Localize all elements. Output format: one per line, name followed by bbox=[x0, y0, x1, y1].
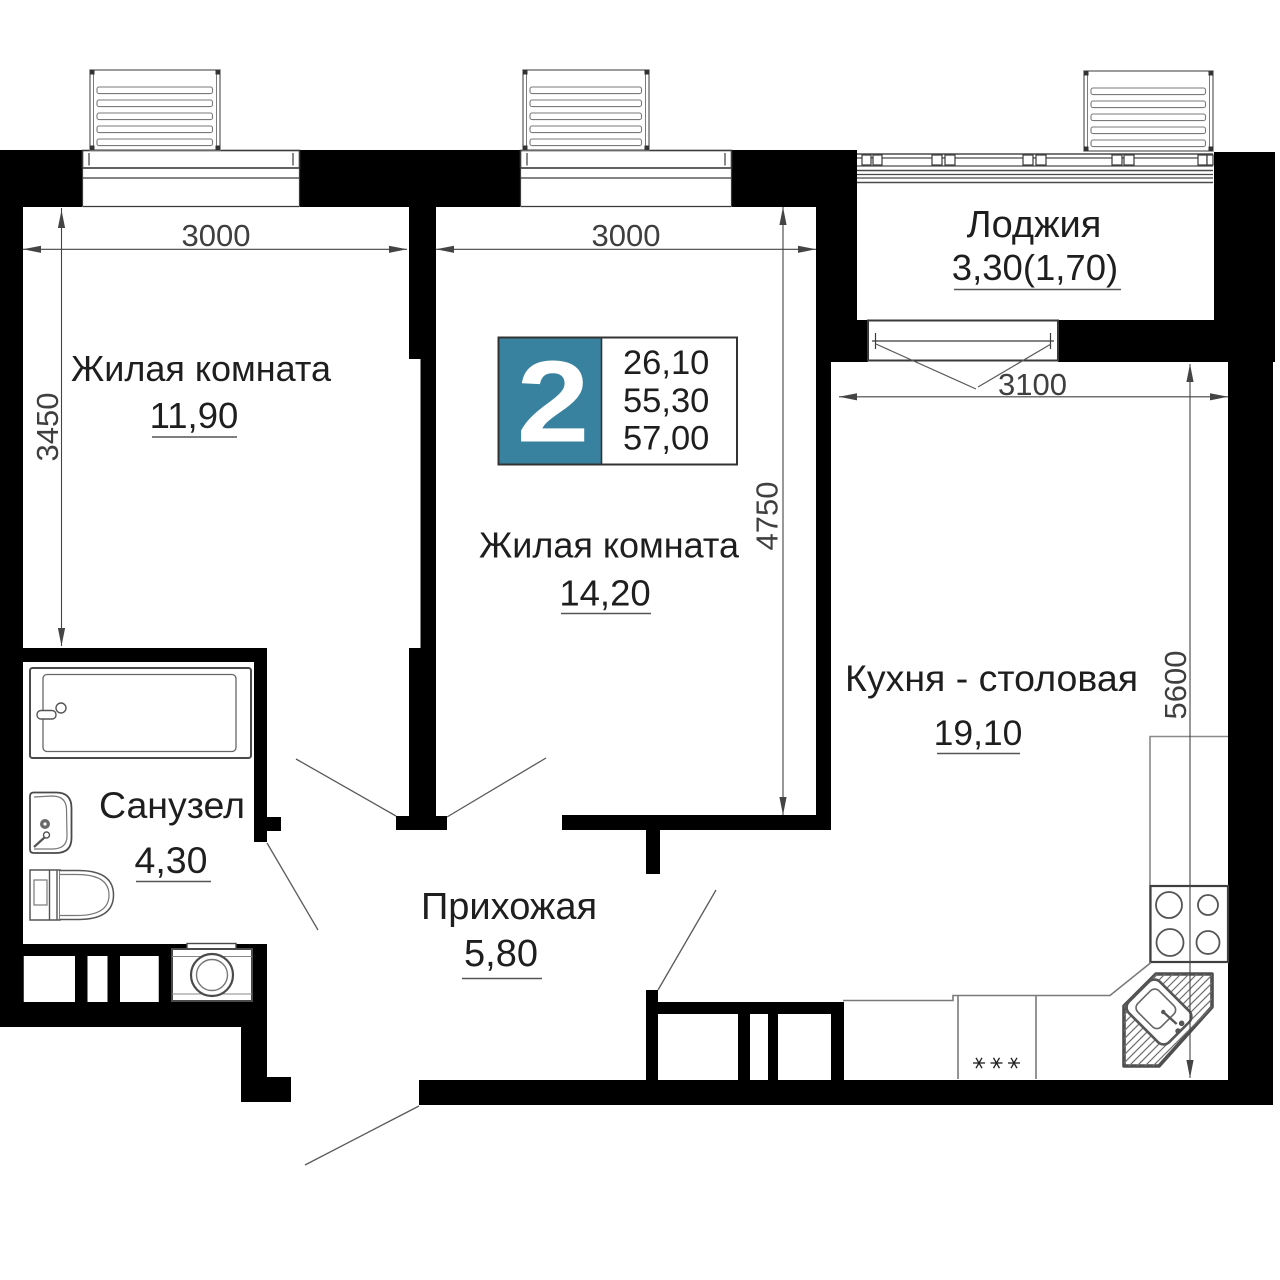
svg-text:19,10: 19,10 bbox=[934, 713, 1023, 753]
svg-text:Санузел: Санузел bbox=[99, 784, 245, 826]
svg-text:Кухня - столовая: Кухня - столовая bbox=[845, 657, 1138, 699]
svg-text:3,30(1,70): 3,30(1,70) bbox=[952, 247, 1118, 288]
svg-text:57,00: 57,00 bbox=[623, 420, 709, 458]
svg-text:4,30: 4,30 bbox=[135, 839, 208, 881]
svg-text:26,10: 26,10 bbox=[623, 344, 709, 382]
svg-text:Жилая комната: Жилая комната bbox=[479, 525, 740, 566]
svg-text:Прихожая: Прихожая bbox=[421, 886, 597, 928]
svg-text:11,90: 11,90 bbox=[150, 395, 239, 436]
svg-text:3100: 3100 bbox=[998, 367, 1067, 402]
svg-text:Лоджия: Лоджия bbox=[967, 204, 1102, 246]
svg-text:5600: 5600 bbox=[1158, 651, 1193, 720]
svg-text:14,20: 14,20 bbox=[559, 573, 650, 614]
svg-text:55,30: 55,30 bbox=[623, 382, 709, 420]
svg-text:Жилая комната: Жилая комната bbox=[71, 348, 332, 389]
svg-text:3000: 3000 bbox=[182, 218, 251, 253]
svg-text:2: 2 bbox=[517, 337, 590, 466]
svg-text:3000: 3000 bbox=[592, 218, 661, 253]
svg-text:3450: 3450 bbox=[30, 393, 65, 462]
svg-text:5,80: 5,80 bbox=[464, 933, 538, 975]
svg-text:4750: 4750 bbox=[750, 482, 785, 551]
